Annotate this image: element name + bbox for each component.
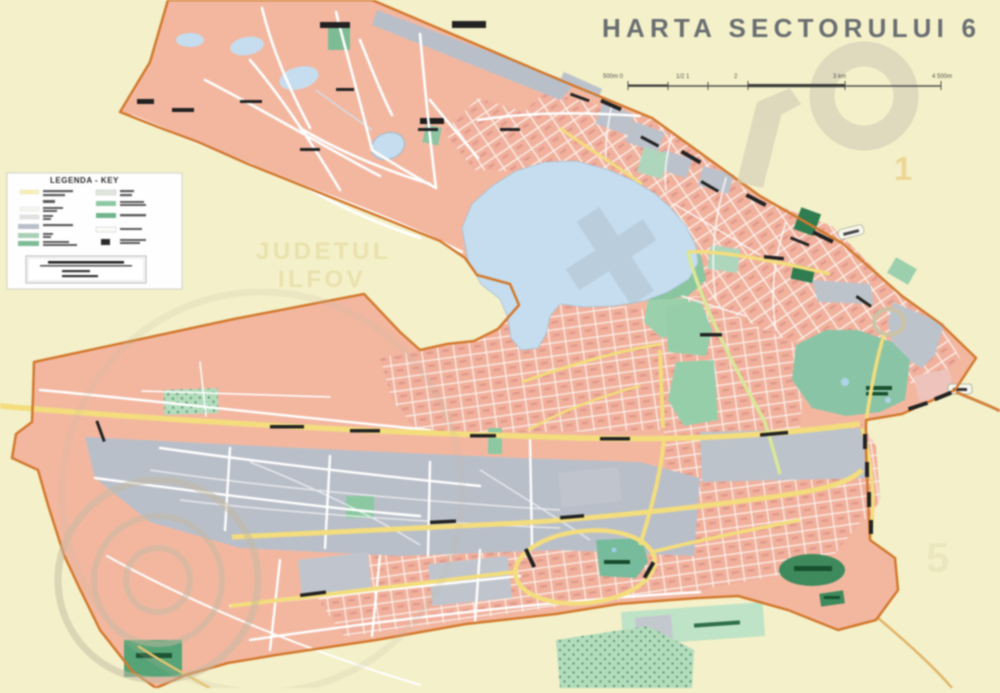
svg-text:ILFOV: ILFOV — [278, 266, 366, 293]
svg-text:4 500m: 4 500m — [932, 74, 952, 80]
svg-text:3 km: 3 km — [833, 74, 846, 80]
svg-text:500m 0: 500m 0 — [603, 74, 624, 80]
svg-text:JUDETUL: JUDETUL — [256, 238, 391, 265]
svg-text:1/2 1: 1/2 1 — [676, 74, 690, 80]
svg-text:HARTA SECTORULUI 6: HARTA SECTORULUI 6 — [602, 13, 981, 43]
svg-text:5: 5 — [926, 534, 949, 581]
svg-text:LEGENDA - KEY: LEGENDA - KEY — [50, 176, 119, 185]
svg-text:1: 1 — [894, 150, 912, 187]
